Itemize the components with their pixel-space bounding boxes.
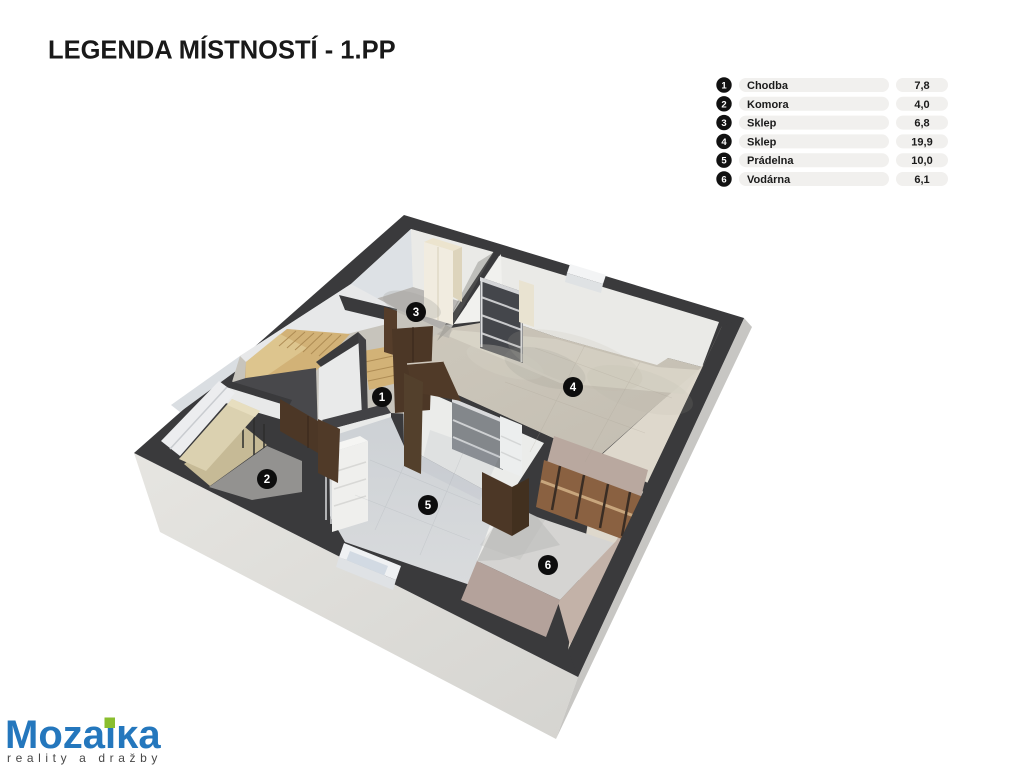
svg-text:LEGENDA MÍSTNOSTÍ - 1.PP: LEGENDA MÍSTNOSTÍ - 1.PP (48, 36, 396, 65)
svg-text:3: 3 (721, 118, 726, 129)
svg-text:2: 2 (721, 99, 726, 110)
svg-text:Sklep: Sklep (747, 136, 777, 148)
svg-text:Sklep: Sklep (747, 118, 777, 130)
svg-text:10,0: 10,0 (911, 155, 932, 167)
svg-text:Chodba: Chodba (747, 80, 789, 92)
svg-text:Vodárna: Vodárna (747, 174, 791, 186)
svg-text:6,8: 6,8 (914, 118, 929, 130)
svg-text:6,1: 6,1 (914, 174, 929, 186)
svg-text:4,0: 4,0 (914, 99, 929, 111)
svg-text:1: 1 (721, 81, 727, 92)
svg-text:1: 1 (379, 392, 386, 404)
svg-text:2: 2 (264, 474, 270, 486)
svg-text:4: 4 (570, 382, 577, 394)
svg-text:19,9: 19,9 (911, 136, 932, 148)
svg-text:reality a dražby: reality a dražby (7, 751, 162, 765)
svg-text:4: 4 (721, 137, 727, 148)
svg-text:7,8: 7,8 (914, 80, 929, 92)
svg-text:6: 6 (545, 560, 551, 572)
svg-text:3: 3 (413, 307, 419, 319)
svg-text:5: 5 (425, 500, 432, 512)
svg-text:Komora: Komora (747, 99, 789, 111)
svg-text:5: 5 (721, 156, 727, 167)
svg-text:Prádelna: Prádelna (747, 155, 794, 167)
svg-text:6: 6 (721, 175, 726, 186)
